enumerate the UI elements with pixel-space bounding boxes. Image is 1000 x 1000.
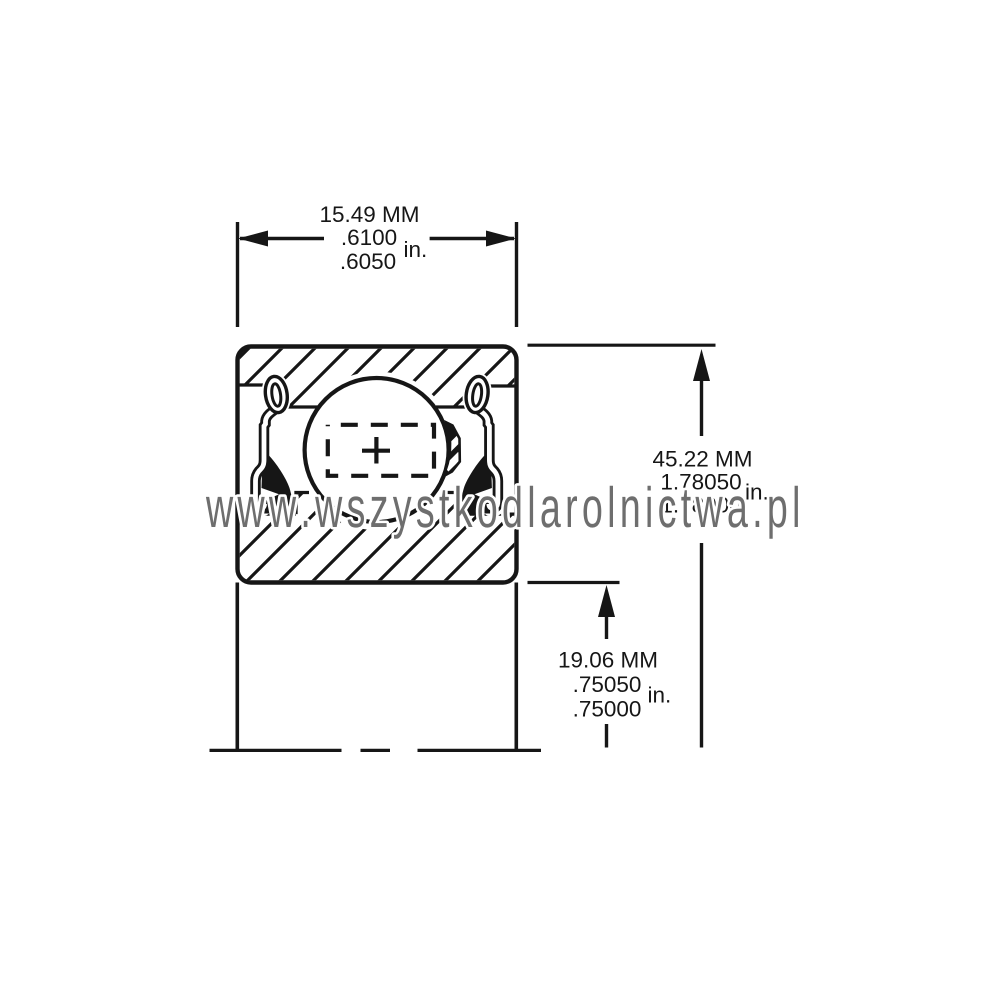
svg-text:15.49 MM: 15.49 MM: [319, 202, 419, 227]
svg-text:in.: in.: [648, 683, 672, 708]
svg-text:19.06 MM: 19.06 MM: [558, 648, 658, 673]
svg-text:.75050: .75050: [573, 672, 642, 697]
svg-text:.6050: .6050: [340, 249, 396, 274]
svg-text:.75000: .75000: [573, 697, 642, 722]
svg-text:in.: in.: [404, 237, 428, 262]
svg-text:45.22 MM: 45.22 MM: [652, 447, 752, 472]
svg-text:.6100: .6100: [341, 225, 397, 250]
svg-text:in.: in.: [745, 480, 769, 505]
svg-text:1.78050: 1.78050: [660, 470, 741, 495]
